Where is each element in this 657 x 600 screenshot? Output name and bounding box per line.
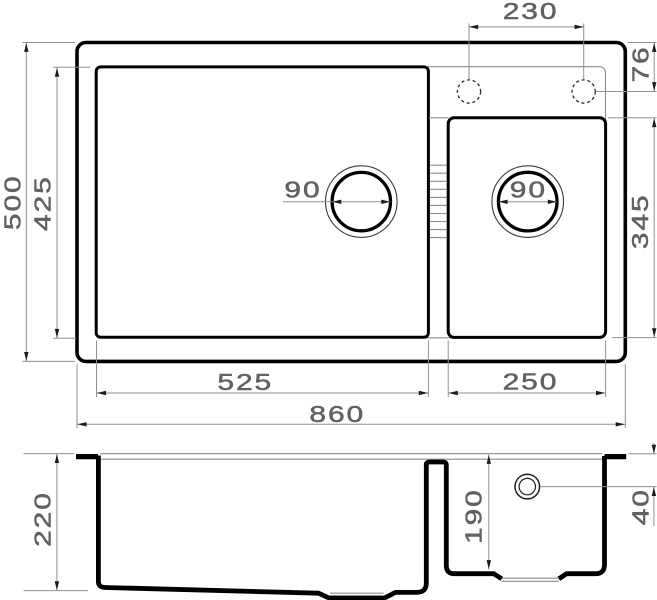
svg-text:525: 525 — [217, 369, 273, 395]
svg-text:230: 230 — [503, 0, 559, 24]
svg-text:345: 345 — [627, 193, 653, 249]
svg-text:220: 220 — [30, 491, 56, 547]
svg-text:250: 250 — [503, 368, 559, 394]
svg-text:76: 76 — [628, 45, 654, 82]
svg-text:90: 90 — [284, 176, 321, 202]
svg-text:500: 500 — [0, 174, 26, 230]
svg-text:425: 425 — [29, 175, 55, 231]
svg-text:190: 190 — [461, 488, 487, 544]
svg-text:40: 40 — [627, 488, 653, 525]
svg-text:860: 860 — [309, 401, 365, 427]
svg-text:90: 90 — [510, 177, 547, 203]
